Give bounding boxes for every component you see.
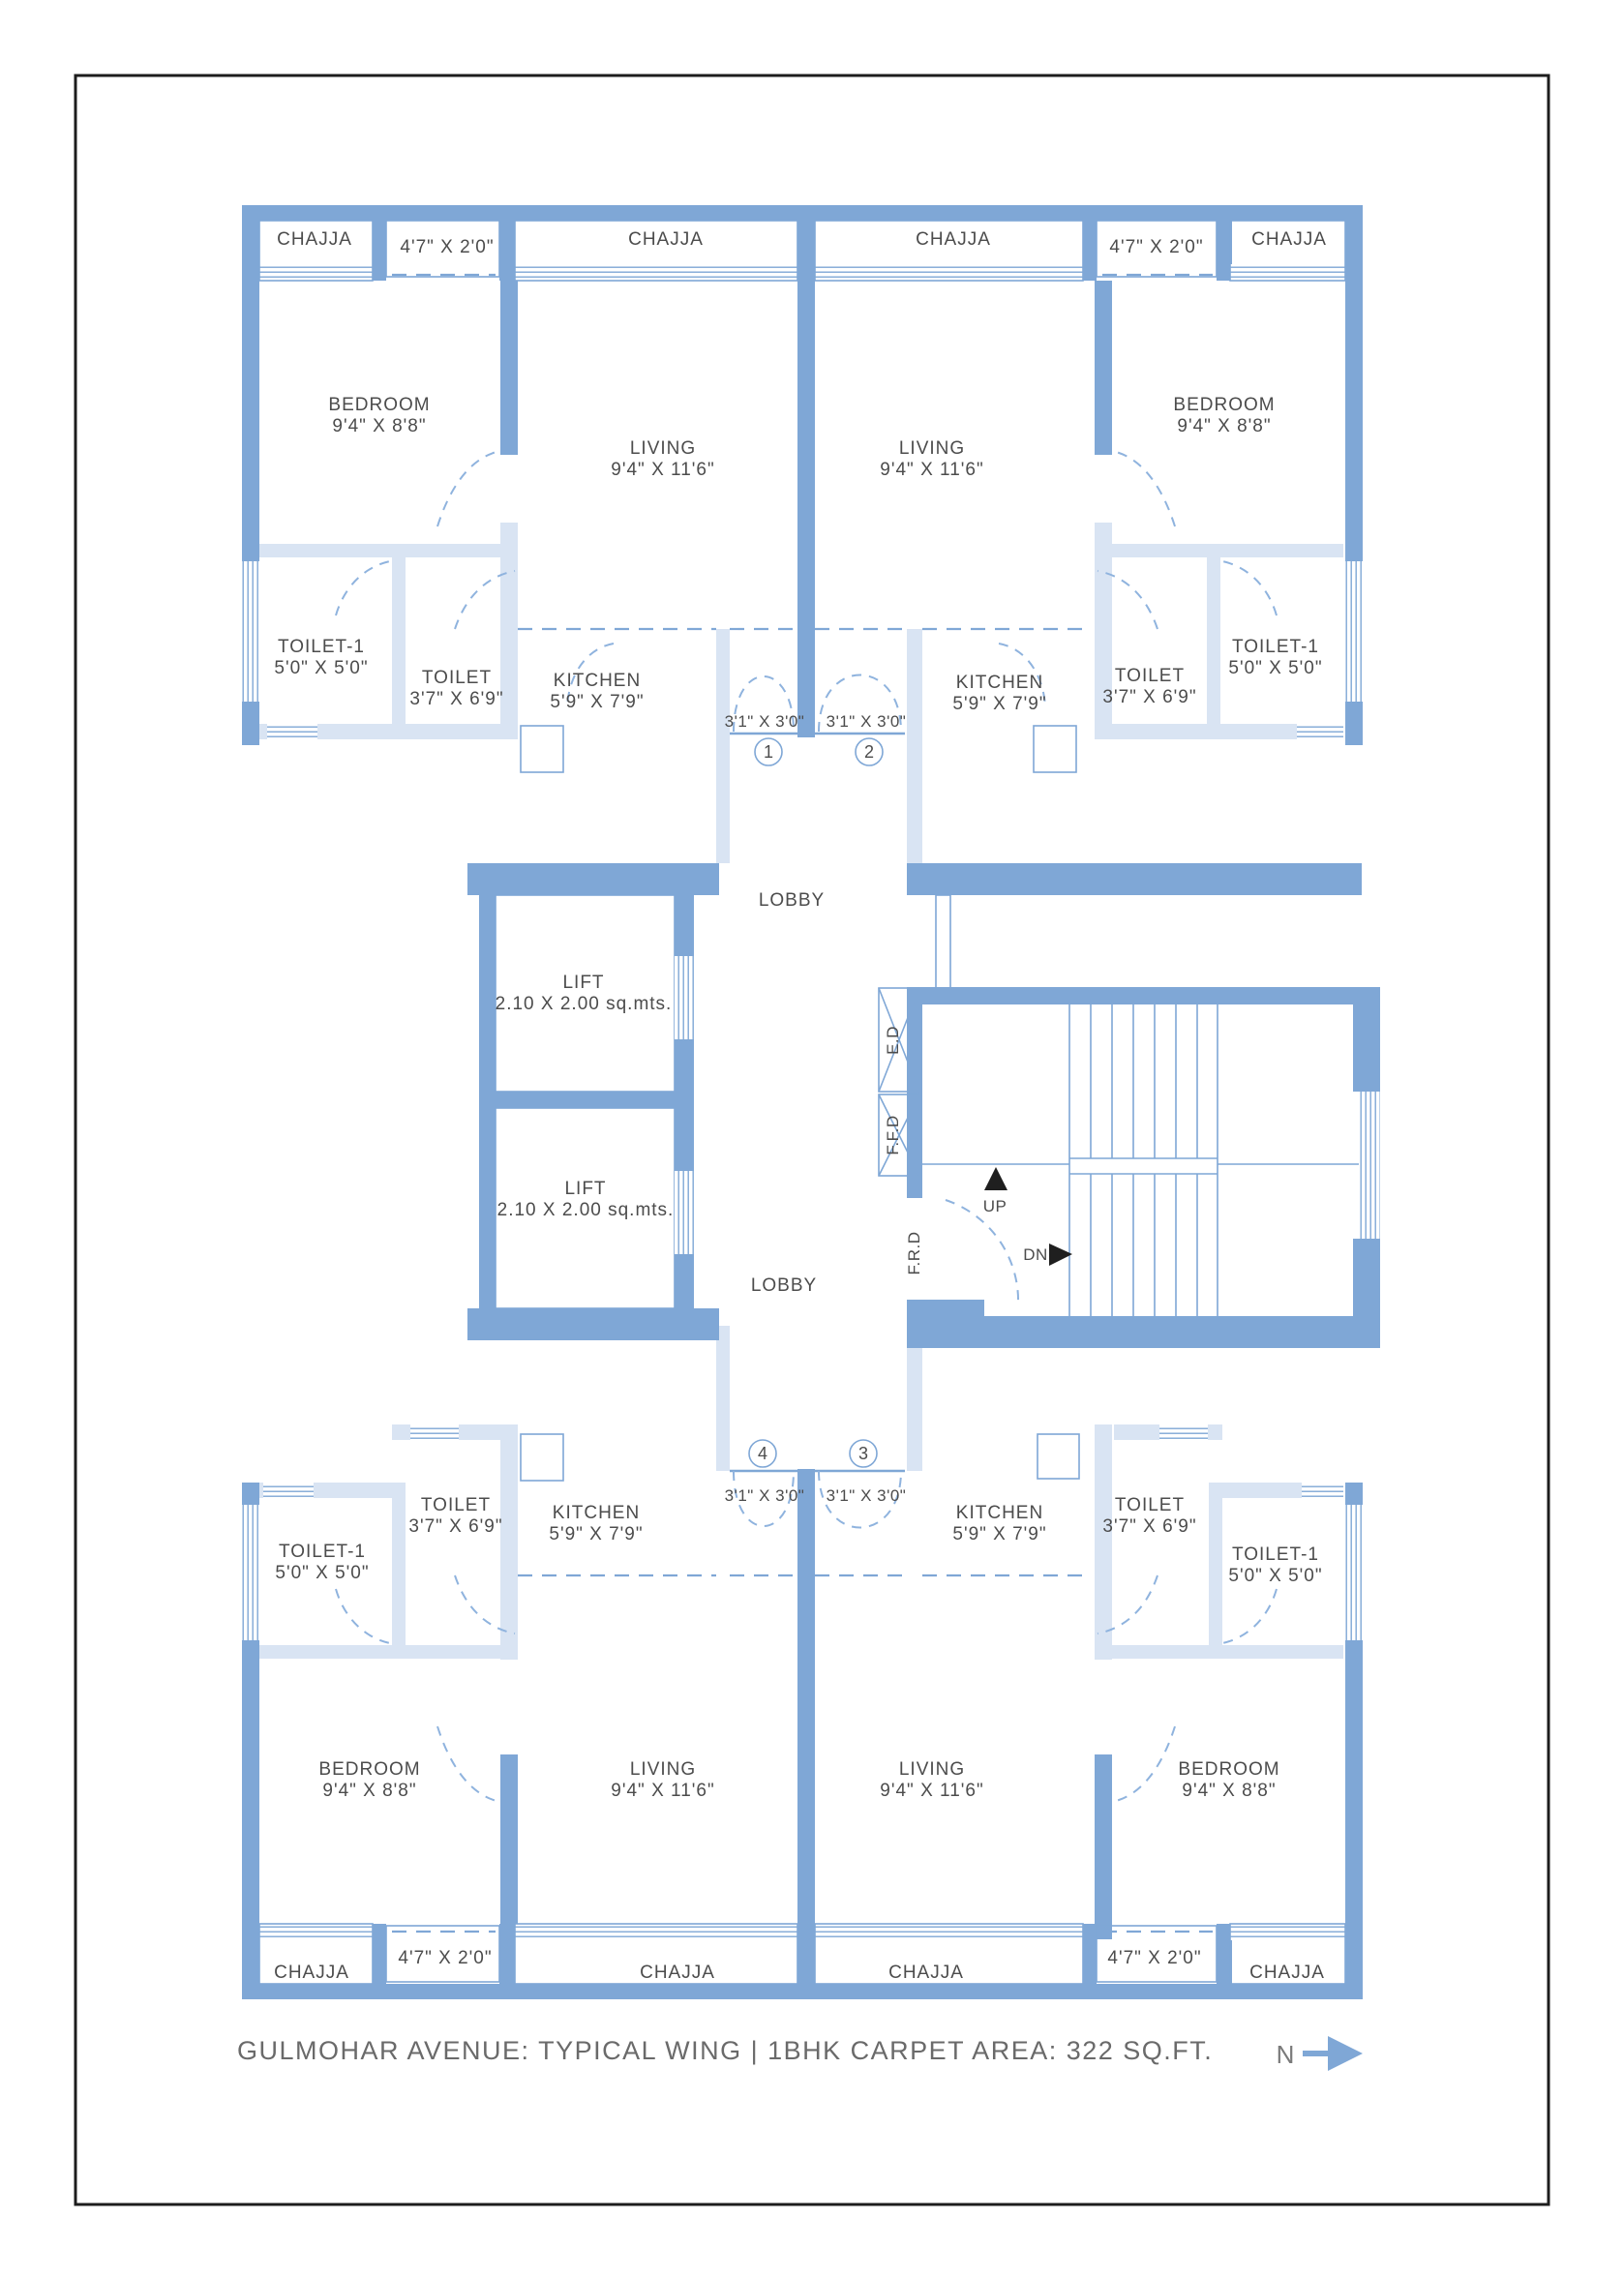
lift-door-2: [675, 1171, 694, 1254]
toilet-dims: 3'7" X 6'9": [408, 1516, 502, 1537]
lobby-label: LOBBY: [751, 1275, 817, 1296]
toilet1-name: TOILET-1: [279, 1542, 366, 1562]
lift-core: [467, 895, 719, 1340]
chajja-label: CHAJJA: [916, 229, 991, 250]
toilet1-dims: 5'0" X 5'0": [1228, 658, 1322, 678]
chajja-label: CHAJJA: [888, 1963, 964, 1983]
toilet-dims: 3'7" X 6'9": [1102, 1516, 1196, 1537]
bedroom-name: BEDROOM: [328, 395, 430, 415]
kitchen-sink-bl: [521, 1434, 563, 1481]
bedroom-name: BEDROOM: [1173, 395, 1275, 415]
toilet-name: TOILET: [1115, 666, 1185, 686]
door-number-1: 1: [764, 742, 773, 762]
floor-plan-page: CHAJJA CHAJJA CHAJJA CHAJJA 4'7" X 2'0" …: [0, 0, 1624, 2278]
toilet-dims: 3'7" X 6'9": [1102, 687, 1196, 707]
kitchen-dims: 5'9" X 7'9": [550, 692, 644, 712]
plan-title: GULMOHAR AVENUE: TYPICAL WING | 1BHK CAR…: [237, 2036, 1213, 2065]
door-number-3: 3: [858, 1444, 868, 1463]
kitchen-dims: 5'9" X 7'9": [952, 1524, 1046, 1544]
lift-dims: 2.10 X 2.00 sq.mts.: [496, 994, 673, 1014]
bedroom-dims: 9'4" X 8'8": [1182, 1781, 1276, 1801]
ed-duct-label: E.D: [884, 1026, 902, 1055]
bedroom-dims: 9'4" X 8'8": [332, 416, 426, 436]
kitchen-name: KITCHEN: [553, 1503, 640, 1523]
exterior-walls: [242, 205, 1363, 1999]
bedroom-dims: 9'4" X 8'8": [1177, 416, 1271, 436]
door-dims-label: 3'1" X 3'0": [827, 1486, 907, 1505]
lift-name: LIFT: [562, 973, 604, 993]
living-dims: 9'4" X 11'6": [880, 460, 983, 480]
toilet-name: TOILET: [421, 1495, 491, 1515]
chajja-label: CHAJJA: [628, 229, 704, 250]
chajja-label: CHAJJA: [1251, 229, 1327, 250]
living-name: LIVING: [630, 1759, 696, 1780]
balcony-dims-label: 4'7" X 2'0": [400, 237, 494, 257]
kitchen-name: KITCHEN: [956, 1503, 1043, 1523]
toilet1-name: TOILET-1: [278, 637, 365, 657]
balcony-dims-label: 4'7" X 2'0": [1107, 1948, 1201, 1968]
frd-door-label: F.R.D: [905, 1232, 923, 1275]
lift-dims: 2.10 X 2.00 sq.mts.: [497, 1200, 675, 1220]
bedroom-dims: 9'4" X 8'8": [322, 1781, 416, 1801]
living-dims: 9'4" X 11'6": [611, 460, 714, 480]
bedroom-name: BEDROOM: [318, 1759, 420, 1780]
kitchen-sink-br: [1038, 1434, 1079, 1479]
toilet-name: TOILET: [422, 668, 492, 688]
balcony-dims-label: 4'7" X 2'0": [398, 1948, 492, 1968]
living-dims: 9'4" X 11'6": [611, 1781, 714, 1801]
stair-window: [1359, 1092, 1380, 1239]
door-dims-label: 3'1" X 3'0": [725, 712, 805, 731]
lift-name: LIFT: [564, 1179, 606, 1199]
up-arrow-icon: [984, 1167, 1007, 1190]
toilet1-dims: 5'0" X 5'0": [1228, 1566, 1322, 1586]
lobby-label: LOBBY: [759, 890, 825, 911]
kitchen-sink-tr: [1034, 726, 1076, 772]
door-dims-label: 3'1" X 3'0": [827, 712, 907, 731]
living-name: LIVING: [630, 438, 696, 459]
toilet-dims: 3'7" X 6'9": [409, 689, 503, 709]
door-dims-label: 3'1" X 3'0": [725, 1486, 805, 1505]
toilet1-dims: 5'0" X 5'0": [274, 658, 368, 678]
north-label: N: [1277, 2040, 1295, 2069]
lift-door-1: [675, 956, 694, 1039]
living-dims: 9'4" X 11'6": [880, 1781, 983, 1801]
balcony-dims-label: 4'7" X 2'0": [1109, 237, 1203, 257]
kitchen-name: KITCHEN: [956, 673, 1043, 693]
door-number-4: 4: [758, 1444, 767, 1463]
chajja-label: CHAJJA: [277, 229, 352, 250]
kitchen-name: KITCHEN: [554, 671, 641, 691]
toilet1-name: TOILET-1: [1232, 1544, 1319, 1565]
chajja-label: CHAJJA: [274, 1963, 349, 1983]
floor-plan-svg: CHAJJA CHAJJA CHAJJA CHAJJA 4'7" X 2'0" …: [0, 0, 1624, 2278]
kitchen-dims: 5'9" X 7'9": [549, 1524, 643, 1544]
door-number-2: 2: [864, 742, 874, 762]
chajja-label: CHAJJA: [640, 1963, 715, 1983]
dn-label: DN: [1023, 1245, 1048, 1264]
up-label: UP: [983, 1197, 1007, 1215]
toilet1-name: TOILET-1: [1232, 637, 1319, 657]
chajja-label: CHAJJA: [1249, 1963, 1325, 1983]
north-indicator: N: [1277, 2036, 1363, 2071]
kitchen-sink-tl: [521, 726, 563, 772]
door-number-badges: [749, 738, 883, 1467]
living-name: LIVING: [899, 1759, 965, 1780]
staircase-block: [879, 895, 1380, 1348]
ffd-duct-label: F.F.D: [884, 1115, 902, 1154]
toilet-name: TOILET: [1115, 1495, 1185, 1515]
bedroom-name: BEDROOM: [1178, 1759, 1279, 1780]
living-name: LIVING: [899, 438, 965, 459]
toilet1-dims: 5'0" X 5'0": [275, 1563, 369, 1583]
north-arrow-icon: [1328, 2036, 1363, 2071]
kitchen-dims: 5'9" X 7'9": [952, 694, 1046, 714]
